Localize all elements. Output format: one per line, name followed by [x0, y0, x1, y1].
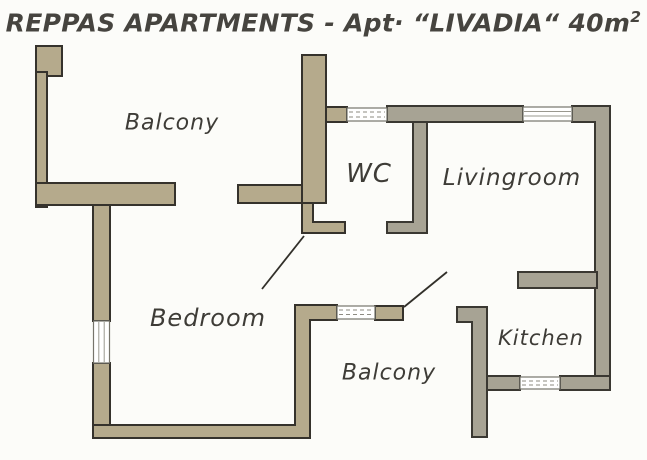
room-label-balcony-bottom: Balcony	[342, 361, 436, 386]
wall-kitchen-divider	[518, 272, 597, 288]
room-label-bedroom: Bedroom	[150, 304, 266, 332]
wall-wc-right	[387, 114, 427, 233]
bedroom-door-swing-icon	[262, 236, 304, 289]
wall-livingroom-top	[387, 106, 523, 122]
floor-plan: REPPAS APARTMENTS - Apt· “LIVADIA“ 40m2	[0, 0, 647, 460]
room-label-livingroom: Livingroom	[443, 165, 581, 191]
wall-kitchen-bottom-west	[487, 376, 520, 390]
wall-wc-left	[302, 55, 326, 203]
room-label-wc: WC	[346, 159, 392, 189]
bedroom-balcony-window-icon	[337, 306, 375, 319]
wall-bedroom-left-upper	[93, 205, 110, 321]
floor-plan-drawing	[0, 0, 647, 460]
wall-wc-left-foot	[302, 203, 345, 233]
room-label-kitchen: Kitchen	[498, 326, 584, 350]
kitchen-window-icon	[520, 377, 560, 389]
bedroom-left-window-icon	[94, 321, 110, 363]
wall-balcony-bottom-west	[36, 183, 175, 205]
room-label-balcony-top: Balcony	[125, 111, 219, 136]
balcony-door-swing-icon	[404, 272, 447, 307]
wc-window-icon	[347, 108, 387, 121]
wall-balcony-bottom-east	[238, 185, 304, 203]
wall-balcony-window-jamb	[375, 306, 403, 320]
wall-wc-top-stub	[326, 107, 347, 122]
wall-kitchen-bottom-east	[560, 376, 610, 390]
livingroom-window-icon	[523, 107, 572, 121]
walls-gray	[387, 106, 610, 437]
door-swing-lines	[262, 236, 447, 307]
wall-kitchen-west	[457, 307, 487, 437]
